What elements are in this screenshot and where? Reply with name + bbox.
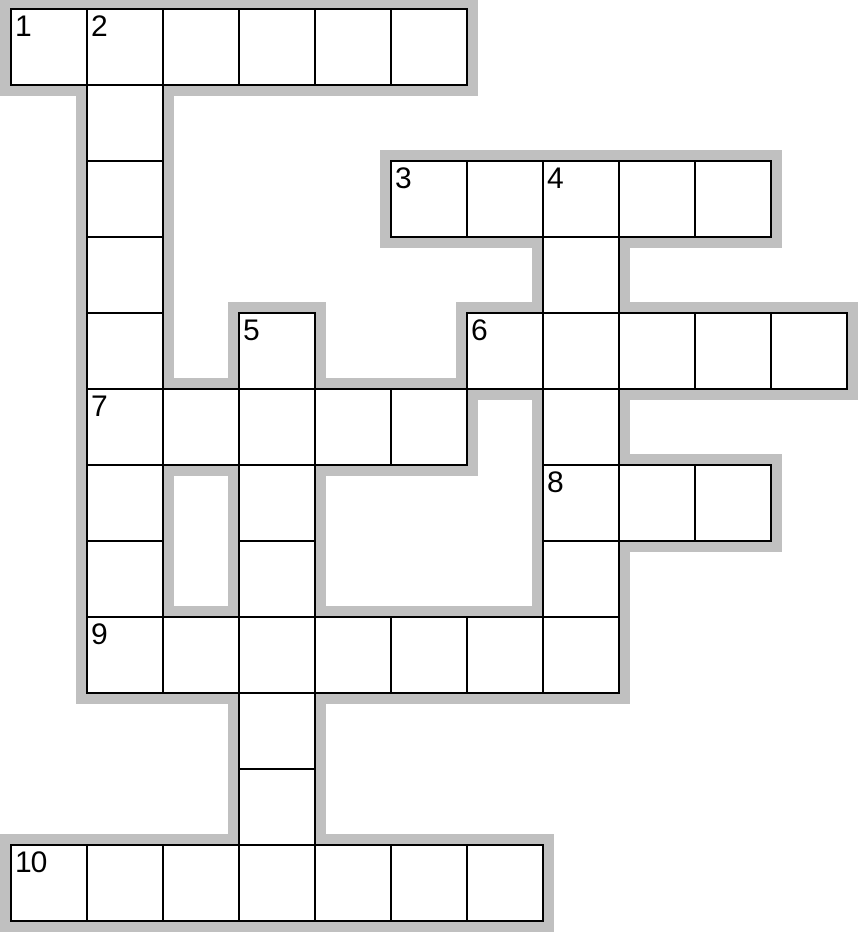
crossword-puzzle: 12345678910 [0,0,864,941]
clue-number: 3 [395,164,411,194]
clue-number: 9 [91,620,107,650]
clue-number: 7 [91,392,107,422]
clue-number: 5 [243,316,259,346]
clue-number: 8 [547,468,563,498]
clue-number: 2 [91,12,107,42]
clue-number: 4 [547,164,563,194]
clue-number: 10 [15,848,46,878]
clue-numbers-layer: 12345678910 [0,0,864,941]
clue-number: 6 [471,316,487,346]
clue-number: 1 [15,12,31,42]
